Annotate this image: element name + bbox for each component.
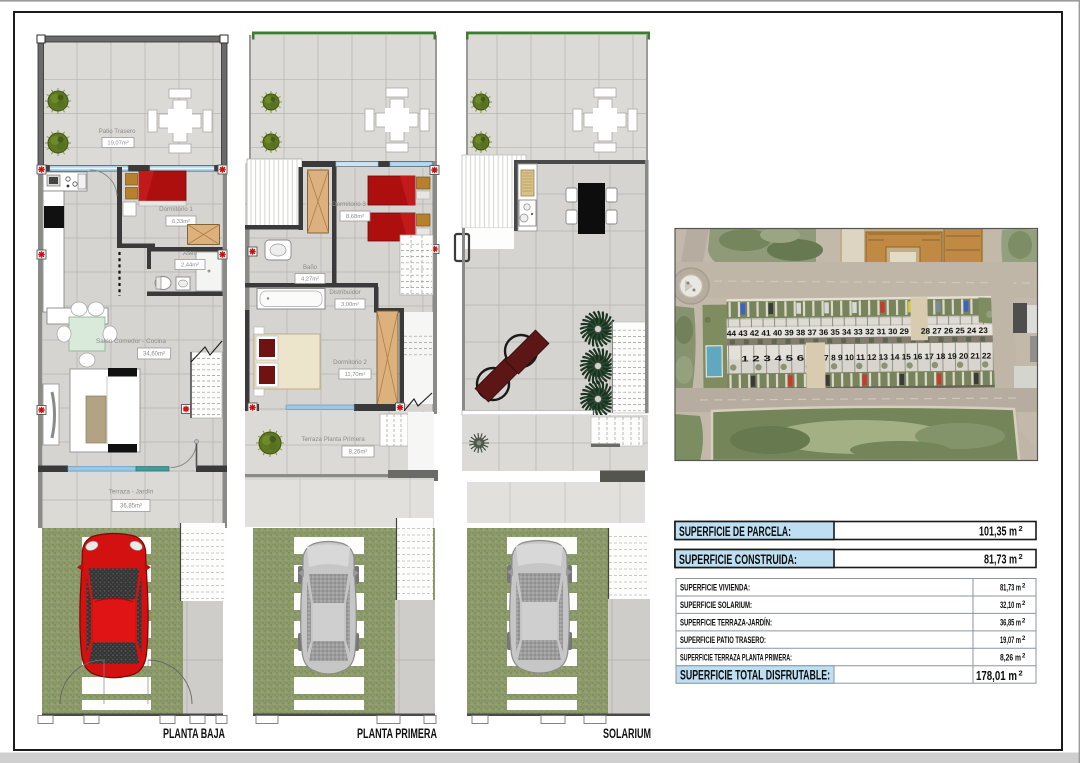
svg-text:19,07m²: 19,07m²	[107, 141, 128, 147]
svg-text:SUPERFICIE TERRAZA-JARDÍN:: SUPERFICIE TERRAZA-JARDÍN:	[680, 618, 772, 629]
svg-text:SUPERFICIE VIVIENDA:: SUPERFICIE VIVIENDA:	[680, 583, 750, 594]
svg-text:2: 2	[1019, 552, 1023, 561]
svg-text:SUPERFICIE SOLARIUM:: SUPERFICIE SOLARIUM:	[680, 600, 752, 611]
svg-text:36,85 m: 36,85 m	[1000, 618, 1021, 629]
svg-text:36,85m²: 36,85m²	[120, 504, 142, 510]
svg-text:SUPERFICIE TOTAL DISFRUTABLE:: SUPERFICIE TOTAL DISFRUTABLE:	[680, 668, 830, 683]
svg-text:178,01 m: 178,01 m	[976, 668, 1017, 683]
svg-text:Dormitorio 3: Dormitorio 3	[332, 201, 366, 208]
svg-text:32,10 m: 32,10 m	[1000, 600, 1021, 611]
svg-text:81,73 m: 81,73 m	[1000, 583, 1021, 594]
svg-text:Patio Trasero: Patio Trasero	[99, 128, 136, 135]
svg-text:Salón Comedor - Cocina: Salón Comedor - Cocina	[96, 338, 166, 345]
svg-text:3,00m²: 3,00m²	[341, 302, 359, 308]
svg-text:2: 2	[1019, 524, 1023, 533]
svg-text:34,60m²: 34,60m²	[143, 352, 165, 358]
svg-text:8,26m²: 8,26m²	[349, 450, 368, 456]
svg-text:Dormitorio 1: Dormitorio 1	[159, 206, 193, 213]
svg-text:Baño: Baño	[303, 265, 318, 271]
svg-text:101,35 m: 101,35 m	[979, 524, 1017, 539]
svg-text:Dormitorio 2: Dormitorio 2	[333, 359, 367, 366]
svg-text:Distribuidor: Distribuidor	[329, 289, 360, 296]
svg-text:SUPERFICIE TERRAZA PLANTA PRIM: SUPERFICIE TERRAZA PLANTA PRIMERA:	[680, 653, 792, 664]
svg-text:Aseo: Aseo	[183, 251, 197, 257]
svg-text:28 27 26 25 24 23: 28 27 26 25 24 23	[921, 326, 989, 336]
svg-text:PLANTA BAJA: PLANTA BAJA	[163, 726, 225, 741]
svg-text:SUPERFICIE DE PARCELA:: SUPERFICIE DE PARCELA:	[679, 524, 791, 539]
svg-text:Terraza Planta Primera: Terraza Planta Primera	[301, 436, 365, 443]
svg-text:11,70m²: 11,70m²	[345, 372, 366, 378]
svg-text:8,68m²: 8,68m²	[346, 214, 364, 220]
svg-text:SUPERFICIE PATIO TRASERO:: SUPERFICIE PATIO TRASERO:	[680, 635, 766, 646]
svg-text:SOLARIUM: SOLARIUM	[603, 726, 651, 741]
svg-text:SUPERFICIE CONSTRUIDA:: SUPERFICIE CONSTRUIDA:	[679, 552, 797, 567]
svg-text:4,27m²: 4,27m²	[301, 277, 319, 283]
svg-text:2,44m²: 2,44m²	[181, 263, 199, 269]
svg-text:81,73 m: 81,73 m	[984, 552, 1017, 567]
svg-text:19,07 m: 19,07 m	[1000, 635, 1021, 646]
svg-text:PLANTA PRIMERA: PLANTA PRIMERA	[357, 726, 437, 741]
svg-text:2: 2	[1019, 668, 1023, 677]
svg-text:1 2 3 4 5 6: 1 2 3 4 5 6	[741, 354, 805, 364]
svg-text:8,26 m: 8,26 m	[1000, 653, 1021, 664]
svg-text:Terraza - Jardín: Terraza - Jardín	[109, 489, 154, 496]
